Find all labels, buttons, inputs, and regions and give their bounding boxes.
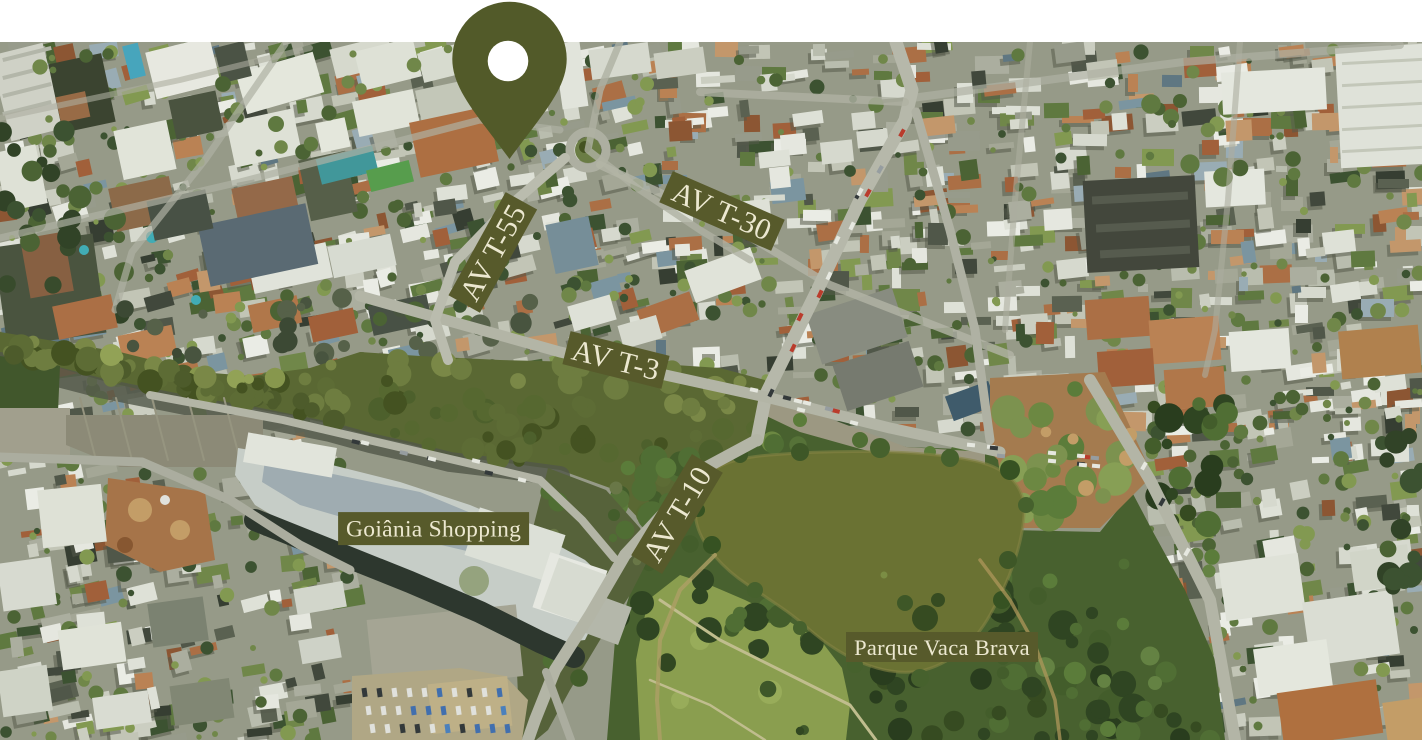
svg-text:Goiânia Shopping: Goiânia Shopping: [346, 517, 521, 543]
svg-text:Parque Vaca Brava: Parque Vaca Brava: [854, 635, 1030, 660]
